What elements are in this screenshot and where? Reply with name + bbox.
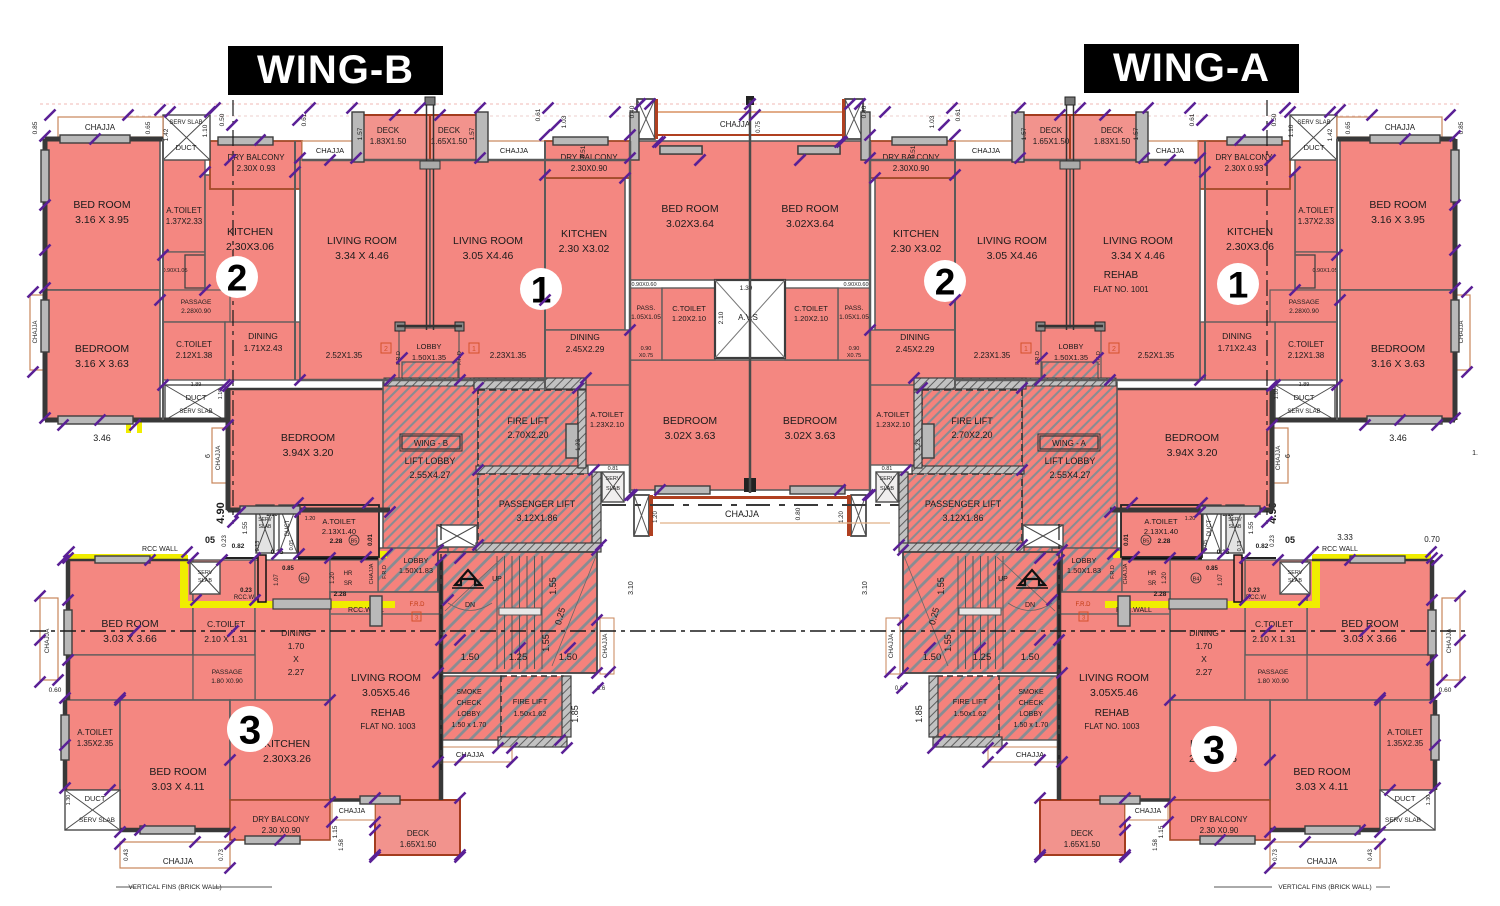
- svg-text:05: 05: [205, 535, 215, 545]
- svg-text:A.TOILET2.13X1.40: A.TOILET2.13X1.40: [1144, 517, 1178, 536]
- svg-text:1.42: 1.42: [163, 128, 170, 141]
- svg-text:0.43: 0.43: [124, 849, 130, 861]
- svg-text:1.07: 1.07: [1218, 574, 1224, 586]
- svg-text:C.TOILET1.20X2.10: C.TOILET1.20X2.10: [672, 304, 706, 323]
- svg-text:CHAJJA: CHAJJA: [1307, 857, 1338, 866]
- svg-text:1.85: 1.85: [914, 705, 924, 723]
- svg-text:0.51: 0.51: [910, 145, 917, 158]
- svg-text:1.30: 1.30: [1426, 795, 1432, 806]
- svg-text:1.03: 1.03: [929, 115, 936, 128]
- svg-text:6: 6: [1285, 454, 1292, 458]
- svg-text:F.R.D: F.R.D: [1076, 602, 1092, 608]
- svg-text:A.V.S: A.V.S: [738, 313, 758, 322]
- svg-text:CHAJJA: CHAJJA: [1446, 628, 1453, 653]
- svg-text:0.61: 0.61: [955, 108, 962, 121]
- svg-text:1.55: 1.55: [541, 634, 551, 652]
- svg-text:1.07: 1.07: [274, 574, 280, 586]
- svg-text:1.58: 1.58: [339, 839, 345, 851]
- svg-text:0.90X1.05: 0.90X1.05: [1312, 268, 1337, 274]
- svg-text:1.03: 1.03: [561, 115, 568, 128]
- svg-text:CHAJJA: CHAJJA: [316, 146, 344, 155]
- svg-text:1.10: 1.10: [1274, 389, 1280, 400]
- svg-text:1.57: 1.57: [1021, 127, 1028, 140]
- svg-text:WING-A: WING-A: [1113, 46, 1270, 90]
- svg-text:FLAT NO. 1003: FLAT NO. 1003: [360, 722, 416, 731]
- svg-text:DUCT: DUCT: [1207, 519, 1213, 536]
- svg-text:1.42: 1.42: [1327, 128, 1334, 141]
- svg-text:SERVSLAB: SERVSLAB: [258, 517, 272, 530]
- svg-text:0.61: 0.61: [1189, 113, 1196, 126]
- svg-text:DUCT: DUCT: [1395, 794, 1416, 803]
- svg-text:1.57: 1.57: [1133, 127, 1140, 140]
- svg-text:CHAJJA: CHAJJA: [500, 146, 528, 155]
- svg-text:1: 1: [1024, 346, 1028, 353]
- svg-text:DUCT: DUCT: [85, 794, 106, 803]
- svg-text:1.25: 1.25: [509, 652, 528, 663]
- svg-text:0.85: 0.85: [32, 121, 39, 134]
- svg-text:SERV SLAB: SERV SLAB: [79, 817, 115, 824]
- svg-text:3: 3: [415, 615, 419, 622]
- svg-text:B5: B5: [1143, 539, 1150, 545]
- svg-text:1.: 1.: [1472, 450, 1478, 457]
- svg-text:CHAJJA: CHAJJA: [163, 857, 194, 866]
- svg-text:WING-B: WING-B: [257, 48, 414, 92]
- svg-text:CHAJJA: CHAJJA: [215, 445, 222, 470]
- svg-text:VERTICAL FINS (BRICK WALL): VERTICAL FINS (BRICK WALL): [1278, 884, 1371, 891]
- svg-text:0.01: 0.01: [1124, 534, 1130, 546]
- svg-text:0.43: 0.43: [1368, 849, 1374, 861]
- svg-text:0.73: 0.73: [1273, 849, 1279, 861]
- svg-text:0.05: 0.05: [289, 540, 295, 551]
- svg-text:0.82: 0.82: [232, 543, 245, 550]
- svg-text:1.20: 1.20: [330, 572, 336, 584]
- svg-text:RCC WALL: RCC WALL: [1322, 546, 1358, 553]
- svg-text:0.01: 0.01: [368, 534, 374, 546]
- svg-text:0.73: 0.73: [219, 849, 225, 861]
- svg-text:1.10: 1.10: [202, 124, 209, 137]
- svg-text:1.20: 1.20: [305, 516, 316, 522]
- svg-text:0.85: 0.85: [282, 566, 294, 572]
- svg-text:REHAB: REHAB: [1104, 270, 1139, 281]
- svg-text:WING - B: WING - B: [414, 439, 448, 448]
- svg-text:0.90X1.05: 0.90X1.05: [162, 268, 187, 274]
- svg-text:LOBBY1.50X1.83: LOBBY1.50X1.83: [399, 556, 433, 575]
- svg-text:0.13: 0.13: [255, 541, 261, 552]
- svg-text:0.90X0.60: 0.90X0.60: [843, 282, 868, 288]
- svg-text:CHAJJA: CHAJJA: [720, 120, 751, 129]
- svg-text:LOBBY1.50X1.83: LOBBY1.50X1.83: [1067, 556, 1101, 575]
- svg-text:1.58: 1.58: [1153, 839, 1159, 851]
- svg-text:B4: B4: [301, 577, 308, 583]
- svg-text:CHAJJA: CHAJJA: [1459, 321, 1465, 344]
- svg-text:1.20: 1.20: [1162, 572, 1168, 584]
- svg-text:0.90X0.60: 0.90X0.60: [631, 282, 656, 288]
- svg-text:UP: UP: [998, 576, 1008, 583]
- svg-text:CHAJJA: CHAJJA: [369, 563, 375, 584]
- svg-text:0.85: 0.85: [1206, 566, 1218, 572]
- svg-text:0.23: 0.23: [240, 588, 252, 594]
- svg-text:CHAJJA: CHAJJA: [85, 123, 116, 132]
- svg-text:0.40: 0.40: [861, 105, 868, 118]
- svg-text:DUCT: DUCT: [1294, 393, 1315, 402]
- svg-text:0.80: 0.80: [795, 507, 802, 520]
- svg-text:SERV SLAB: SERV SLAB: [1287, 409, 1320, 415]
- svg-text:0.23: 0.23: [1270, 535, 1276, 547]
- svg-text:1.30: 1.30: [66, 795, 72, 806]
- svg-text:2: 2: [935, 261, 956, 302]
- svg-text:3.33: 3.33: [1337, 533, 1353, 542]
- svg-text:0.13: 0.13: [1237, 541, 1243, 552]
- svg-text:3: 3: [1082, 615, 1086, 622]
- svg-text:2: 2: [384, 346, 388, 353]
- svg-text:1.50: 1.50: [1021, 652, 1040, 663]
- svg-text:4.90: 4.90: [215, 502, 227, 523]
- svg-text:CHAJJA: CHAJJA: [725, 509, 759, 519]
- svg-text:CHAJJA: CHAJJA: [339, 808, 366, 815]
- svg-text:1.20: 1.20: [653, 511, 659, 523]
- svg-text:REHAB: REHAB: [1095, 708, 1130, 719]
- svg-text:1.20: 1.20: [839, 511, 845, 523]
- svg-text:F.R.D: F.R.D: [410, 602, 426, 608]
- svg-text:1.89: 1.89: [191, 382, 202, 388]
- svg-text:2.28: 2.28: [1154, 591, 1167, 598]
- svg-text:SERVSLAB: SERVSLAB: [1228, 517, 1242, 530]
- svg-text:F.R.D: F.R.D: [1110, 565, 1116, 579]
- svg-text:1.10: 1.10: [1288, 124, 1295, 137]
- svg-text:3.10: 3.10: [628, 581, 635, 595]
- svg-text:1.15: 1.15: [332, 825, 339, 838]
- svg-text:0.81SERVSLAB: 0.81SERVSLAB: [880, 466, 895, 492]
- svg-text:1.57: 1.57: [357, 127, 364, 140]
- svg-text:1.23: 1.23: [916, 439, 922, 451]
- svg-text:CHAJJA: CHAJJA: [44, 628, 51, 653]
- svg-text:1.85: 1.85: [570, 705, 580, 723]
- svg-text:SERV SLAB: SERV SLAB: [1297, 120, 1330, 126]
- svg-text:DUCT: DUCT: [285, 519, 291, 536]
- svg-text:2.52X1.35: 2.52X1.35: [326, 351, 363, 360]
- svg-text:3.46: 3.46: [93, 433, 111, 443]
- svg-text:0.61: 0.61: [535, 108, 542, 121]
- svg-text:2.52X1.35: 2.52X1.35: [1138, 351, 1175, 360]
- svg-text:B4: B4: [1193, 577, 1200, 583]
- svg-text:B5: B5: [351, 539, 358, 545]
- svg-text:6: 6: [205, 454, 212, 458]
- svg-text:2: 2: [227, 257, 248, 298]
- svg-text:0.23: 0.23: [1248, 588, 1260, 594]
- svg-text:1.50: 1.50: [559, 652, 578, 663]
- svg-text:0.75: 0.75: [756, 121, 762, 133]
- svg-text:2.10: 2.10: [718, 311, 725, 324]
- svg-text:CHAJJA: CHAJJA: [1275, 445, 1282, 470]
- svg-text:0.82: 0.82: [1256, 543, 1269, 550]
- svg-text:0.81SERVSLAB: 0.81SERVSLAB: [606, 466, 621, 492]
- svg-text:2.28: 2.28: [330, 538, 343, 545]
- svg-text:DN: DN: [465, 602, 475, 609]
- svg-text:CHAJJA: CHAJJA: [1385, 123, 1416, 132]
- svg-text:1.55: 1.55: [1248, 521, 1255, 534]
- svg-text:CHAJJA: CHAJJA: [1123, 563, 1129, 584]
- svg-text:CHAJJA: CHAJJA: [1135, 808, 1162, 815]
- svg-text:1.50: 1.50: [461, 652, 480, 663]
- svg-text:REHAB: REHAB: [371, 708, 406, 719]
- svg-text:RCC WALL: RCC WALL: [142, 546, 178, 553]
- svg-text:C.TOILET1.20X2.10: C.TOILET1.20X2.10: [794, 304, 828, 323]
- svg-text:CHAJJA: CHAJJA: [456, 750, 484, 759]
- svg-text:1.55: 1.55: [936, 577, 946, 595]
- svg-text:VERTICAL FINS (BRICK WALL): VERTICAL FINS (BRICK WALL): [128, 884, 221, 891]
- svg-text:CHAJJA: CHAJJA: [602, 633, 609, 658]
- svg-text:0.23: 0.23: [222, 535, 228, 547]
- svg-text:0.70: 0.70: [1424, 535, 1440, 544]
- svg-text:0.65: 0.65: [1345, 121, 1352, 134]
- svg-text:1.89: 1.89: [1299, 382, 1310, 388]
- svg-text:DN: DN: [1025, 602, 1035, 609]
- svg-text:2.28: 2.28: [1158, 538, 1171, 545]
- svg-text:WING - A: WING - A: [1052, 439, 1086, 448]
- svg-text:CHAJJA: CHAJJA: [1016, 750, 1044, 759]
- svg-text:CHAJJA: CHAJJA: [33, 321, 39, 344]
- svg-text:DUCT: DUCT: [1304, 143, 1325, 152]
- svg-text:3.46: 3.46: [1389, 433, 1407, 443]
- svg-text:0.90X0.75: 0.90X0.75: [847, 346, 861, 359]
- svg-text:05: 05: [1285, 535, 1295, 545]
- svg-text:A.TOILET2.13X1.40: A.TOILET2.13X1.40: [322, 517, 356, 536]
- svg-text:CHAJJA: CHAJJA: [888, 633, 895, 658]
- svg-text:RCC.W: RCC.W: [234, 595, 255, 601]
- svg-text:0.50: 0.50: [219, 113, 226, 126]
- svg-text:CHAJJA: CHAJJA: [972, 146, 1000, 155]
- svg-text:0.51: 0.51: [580, 145, 587, 158]
- svg-text:1.55: 1.55: [548, 577, 558, 595]
- svg-text:DUCT: DUCT: [186, 393, 207, 402]
- svg-text:FLAT NO. 1003: FLAT NO. 1003: [1084, 722, 1140, 731]
- svg-text:2.23X1.35: 2.23X1.35: [490, 351, 527, 360]
- svg-text:F.R.D: F.R.D: [382, 565, 388, 579]
- svg-text:FLAT NO. 1001: FLAT NO. 1001: [1093, 285, 1149, 294]
- svg-text:1.23: 1.23: [576, 439, 582, 451]
- svg-text:SERV SLAB: SERV SLAB: [1385, 817, 1421, 824]
- svg-text:0.90X0.75: 0.90X0.75: [639, 346, 653, 359]
- svg-text:A.TOILET1.23X2.10: A.TOILET1.23X2.10: [590, 410, 624, 429]
- svg-text:0.60: 0.60: [49, 687, 62, 694]
- svg-text:1: 1: [1228, 264, 1249, 305]
- svg-text:2.28: 2.28: [334, 591, 347, 598]
- svg-text:SERV SLAB: SERV SLAB: [179, 409, 212, 415]
- svg-text:UP: UP: [492, 576, 502, 583]
- svg-text:CHAJJA: CHAJJA: [1156, 146, 1184, 155]
- svg-text:0.65: 0.65: [145, 121, 152, 134]
- svg-text:3: 3: [239, 708, 261, 752]
- svg-text:1.55: 1.55: [242, 521, 249, 534]
- svg-text:1.57: 1.57: [469, 127, 476, 140]
- svg-text:3.10: 3.10: [862, 581, 869, 595]
- svg-text:1.55: 1.55: [943, 634, 953, 652]
- svg-text:1.20: 1.20: [1185, 516, 1196, 522]
- svg-text:1: 1: [472, 346, 476, 353]
- svg-text:2: 2: [1112, 346, 1116, 353]
- svg-text:A.TOILET1.23X2.10: A.TOILET1.23X2.10: [876, 410, 910, 429]
- svg-text:2.23X1.35: 2.23X1.35: [974, 351, 1011, 360]
- svg-text:3: 3: [1203, 728, 1225, 772]
- svg-text:DUCT: DUCT: [176, 143, 197, 152]
- svg-text:SERV SLAB: SERV SLAB: [169, 120, 202, 126]
